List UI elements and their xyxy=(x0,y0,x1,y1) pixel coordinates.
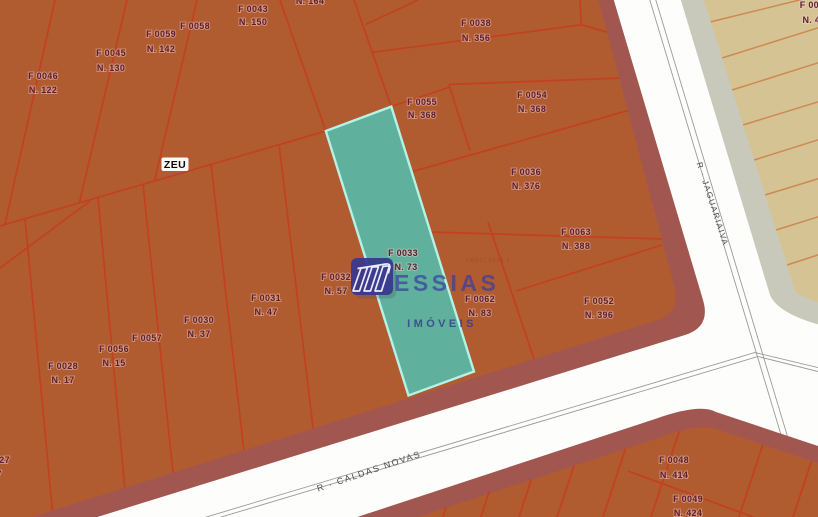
svg-text:IMÓVEIS: IMÓVEIS xyxy=(407,317,477,330)
svg-text:N. 414: N. 414 xyxy=(660,470,688,480)
svg-text:F 0056: F 0056 xyxy=(99,344,129,354)
svg-text:N. 37: N. 37 xyxy=(187,329,210,339)
svg-text:N. 164: N. 164 xyxy=(296,0,324,6)
svg-text:F 0032: F 0032 xyxy=(321,272,351,282)
svg-text:N. 122: N. 122 xyxy=(29,85,57,95)
svg-text:F 0052: F 0052 xyxy=(584,296,614,306)
svg-text:F 0027: F 0027 xyxy=(0,455,10,465)
svg-text:CRECI 5649-J: CRECI 5649-J xyxy=(466,258,510,264)
svg-text:F 0043: F 0043 xyxy=(238,4,268,14)
svg-text:N. 17: N. 17 xyxy=(51,375,74,385)
svg-text:F 0055: F 0055 xyxy=(407,97,437,107)
svg-text:F 0063: F 0063 xyxy=(561,227,591,237)
svg-text:N. 396: N. 396 xyxy=(585,310,613,320)
svg-text:F 0038: F 0038 xyxy=(461,18,491,28)
svg-text:N. 15: N. 15 xyxy=(102,358,125,368)
svg-text:N. 47: N. 47 xyxy=(254,307,277,317)
svg-text:F 0033: F 0033 xyxy=(388,248,418,258)
svg-text:N. 43: N. 43 xyxy=(802,15,818,25)
svg-text:N. 376: N. 376 xyxy=(512,181,540,191)
svg-text:ZEU: ZEU xyxy=(164,159,186,171)
svg-text:F 0046: F 0046 xyxy=(28,71,58,81)
svg-text:N. 130: N. 130 xyxy=(97,63,125,73)
svg-text:N. 368: N. 368 xyxy=(518,104,546,114)
svg-text:F 0031: F 0031 xyxy=(251,293,281,303)
svg-text:N. 150: N. 150 xyxy=(239,17,267,27)
svg-text:F 0036: F 0036 xyxy=(511,167,541,177)
svg-text:F 0054: F 0054 xyxy=(517,90,547,100)
svg-text:F 0030: F 0030 xyxy=(184,315,214,325)
svg-text:ESSIAS: ESSIAS xyxy=(394,270,499,296)
svg-text:N. 424: N. 424 xyxy=(674,508,702,517)
svg-text:N. 388: N. 388 xyxy=(562,241,590,251)
svg-text:F 0049: F 0049 xyxy=(673,494,703,504)
svg-text:F 0057: F 0057 xyxy=(132,333,162,343)
svg-text:N. 83: N. 83 xyxy=(468,308,491,318)
svg-text:N. 142: N. 142 xyxy=(147,44,175,54)
svg-text:F 0059: F 0059 xyxy=(146,29,176,39)
svg-text:F 0058: F 0058 xyxy=(180,21,210,31)
svg-text:N. 57: N. 57 xyxy=(324,286,347,296)
svg-text:N. 368: N. 368 xyxy=(408,110,436,120)
svg-text:F 0048: F 0048 xyxy=(659,455,689,465)
svg-text:N. 356: N. 356 xyxy=(462,33,490,43)
svg-text:F 004: F 004 xyxy=(800,0,818,10)
svg-text:N. 7: N. 7 xyxy=(0,469,2,479)
svg-text:F 0045: F 0045 xyxy=(96,48,126,58)
svg-text:F 0028: F 0028 xyxy=(48,361,78,371)
